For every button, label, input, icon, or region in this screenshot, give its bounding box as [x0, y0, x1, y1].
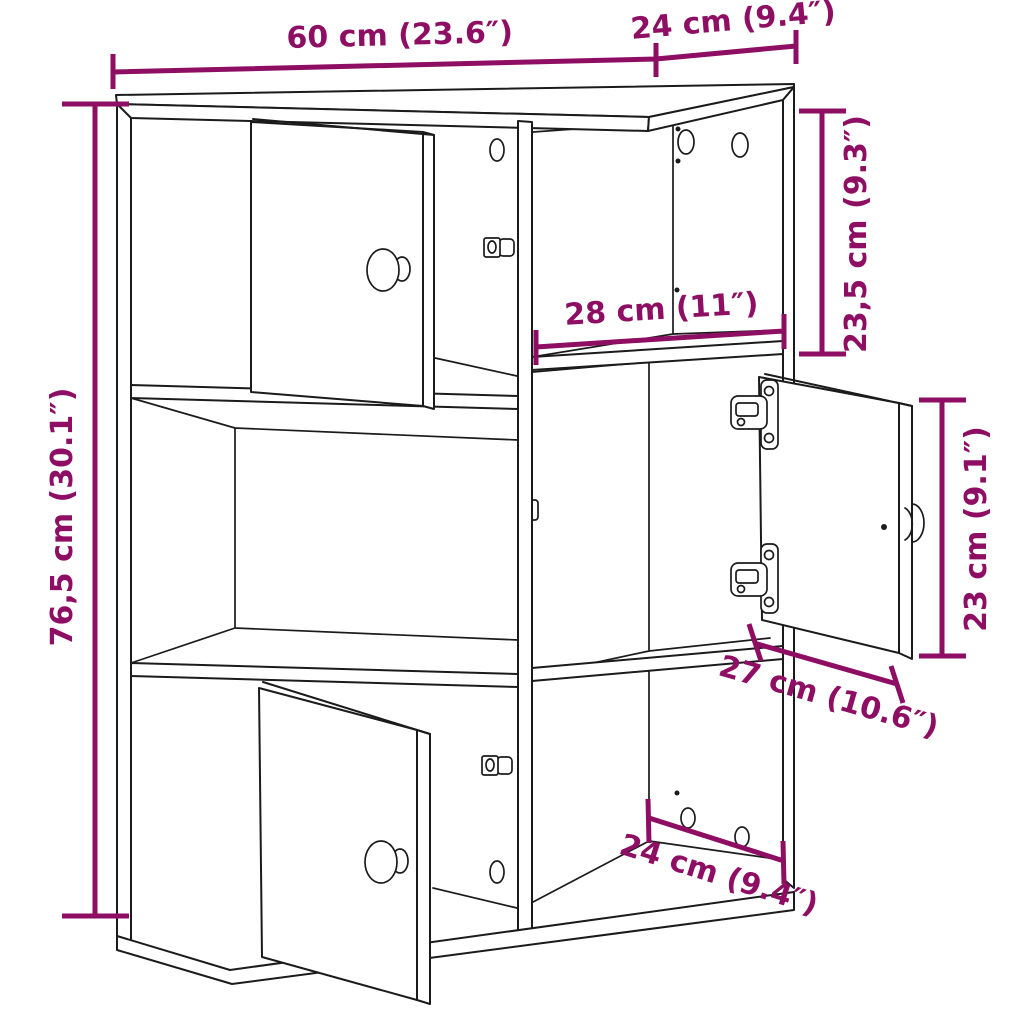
- cam-hole: [490, 139, 504, 161]
- hinge-top: [731, 380, 778, 449]
- center-divider: [518, 121, 532, 932]
- dim-door-height: 23 cm (9.1″): [919, 400, 994, 656]
- cam-hole: [732, 133, 748, 157]
- bookcase-dimension-diagram: 60 cm (23.6″) 24 cm (9.4″) 76,5 cm (30.1…: [0, 0, 1024, 1024]
- bottom-rail: [117, 892, 794, 984]
- dim-label-door-height: 23 cm (9.1″): [959, 426, 994, 632]
- door-knob: [365, 841, 397, 883]
- door-middle-right: [759, 374, 924, 659]
- technical-drawing-canvas: 60 cm (23.6″) 24 cm (9.4″) 76,5 cm (30.1…: [0, 0, 1024, 1024]
- dim-label-overall-height: 76,5 cm (30.1″): [45, 388, 80, 647]
- cam-hole: [490, 861, 504, 883]
- compartment-interiors: [131, 122, 783, 908]
- cam-lock-fitting: [482, 756, 512, 775]
- dim-label-top-section: 23,5 cm (9.3″): [839, 115, 874, 353]
- shelf-left-bottom: [131, 663, 518, 687]
- dim-label-top-depth: 24 cm (9.4″): [629, 0, 837, 47]
- door-top-left: [251, 119, 434, 409]
- dim-label-inner-width: 28 cm (11″): [563, 286, 759, 333]
- dim-top-section-height: 23,5 cm (9.3″): [799, 111, 874, 354]
- cam-hole: [678, 130, 694, 154]
- cam-hole: [681, 808, 695, 828]
- dim-overall-width: 60 cm (23.6″): [113, 15, 656, 89]
- dim-top-depth: 24 cm (9.4″): [629, 0, 837, 64]
- cam-lock-fitting: [484, 238, 514, 257]
- dim-label-overall-width: 60 cm (23.6″): [286, 15, 513, 56]
- hinge-bottom: [731, 544, 778, 613]
- door-knob: [367, 249, 399, 291]
- door-bottom-left: [259, 682, 430, 1004]
- knob-screw: [881, 524, 887, 530]
- left-side-panel: [117, 104, 131, 941]
